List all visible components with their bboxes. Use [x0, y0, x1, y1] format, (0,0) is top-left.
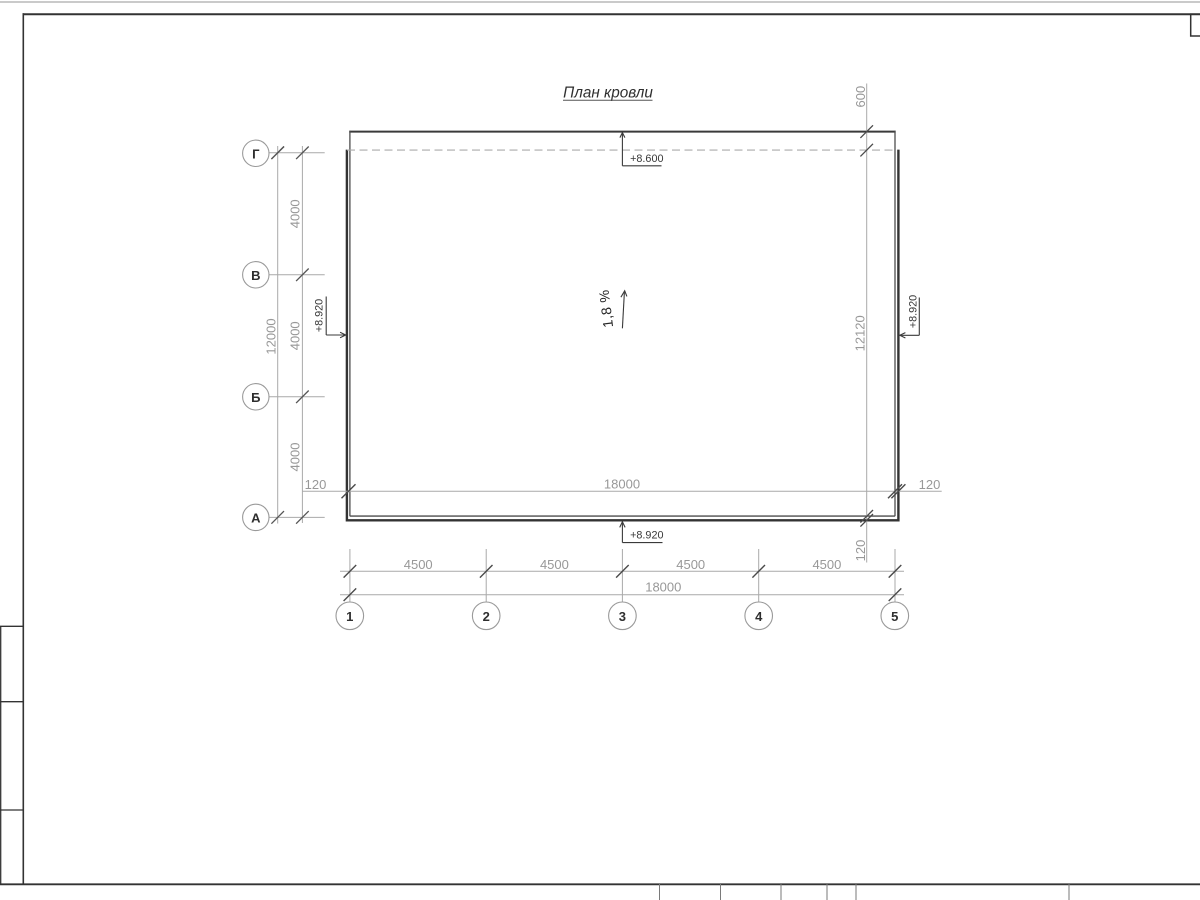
svg-text:3: 3 — [619, 609, 626, 624]
svg-text:4500: 4500 — [812, 557, 841, 572]
svg-text:А: А — [251, 510, 261, 525]
svg-text:4500: 4500 — [676, 557, 705, 572]
svg-text:12000: 12000 — [264, 318, 279, 354]
svg-text:120: 120 — [853, 540, 868, 562]
svg-text:+8.920: +8.920 — [908, 295, 920, 328]
svg-text:4500: 4500 — [540, 557, 569, 572]
svg-text:5: 5 — [891, 609, 898, 624]
svg-text:+8.920: +8.920 — [314, 299, 326, 332]
svg-text:120: 120 — [305, 477, 327, 492]
svg-text:В: В — [251, 268, 260, 283]
svg-text:600: 600 — [853, 86, 868, 108]
svg-text:Б: Б — [251, 390, 260, 405]
svg-text:Г: Г — [252, 146, 260, 161]
svg-text:План кровли: План кровли — [563, 85, 653, 102]
svg-text:4000: 4000 — [288, 199, 303, 228]
svg-text:4000: 4000 — [288, 443, 303, 472]
svg-text:+8.600: +8.600 — [630, 153, 663, 165]
svg-text:1: 1 — [346, 609, 353, 624]
svg-text:4000: 4000 — [288, 321, 303, 350]
svg-text:120: 120 — [919, 477, 941, 492]
svg-text:+8.920: +8.920 — [630, 530, 663, 542]
svg-text:18000: 18000 — [645, 580, 681, 595]
svg-text:2: 2 — [483, 609, 490, 624]
svg-text:18000: 18000 — [604, 476, 640, 491]
svg-text:12120: 12120 — [852, 315, 867, 351]
svg-text:4500: 4500 — [404, 557, 433, 572]
svg-text:4: 4 — [755, 609, 763, 624]
